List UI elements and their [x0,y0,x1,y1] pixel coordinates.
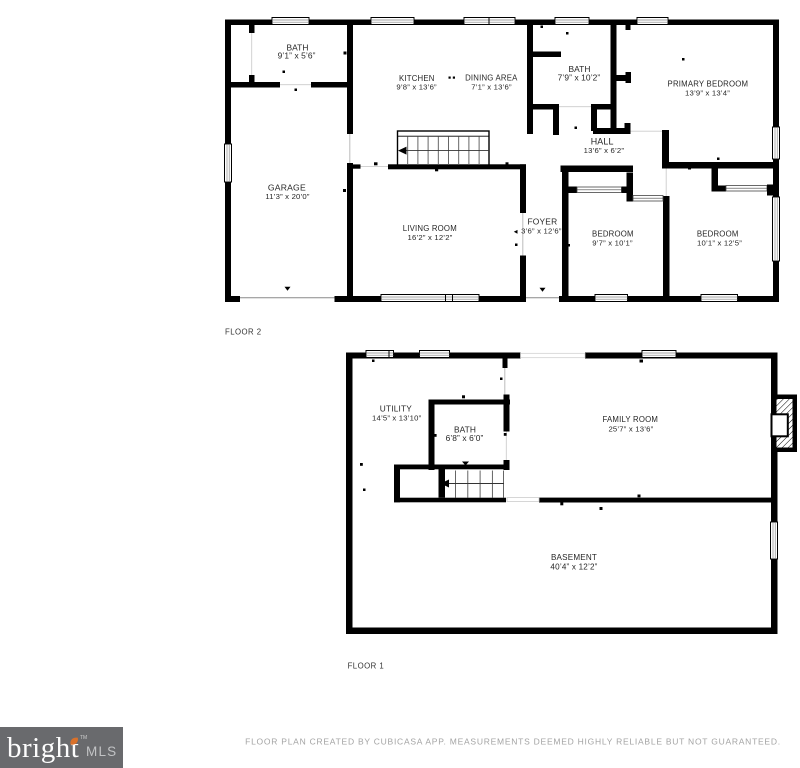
svg-text:LIVING ROOM: LIVING ROOM [403,224,457,233]
svg-text:3’6” x 12’6”: 3’6” x 12’6” [521,227,562,236]
svg-text:KITCHEN: KITCHEN [399,74,435,83]
svg-text:HALL: HALL [591,137,614,147]
svg-text:bright: bright [7,732,79,764]
svg-text:BEDROOM: BEDROOM [592,230,634,239]
svg-text:9’1” x 5’6”: 9’1” x 5’6” [278,51,316,61]
svg-text:UTILITY: UTILITY [380,403,413,413]
svg-text:9’8” x 13’6”: 9’8” x 13’6” [396,83,437,92]
svg-text:DINING AREA: DINING AREA [465,74,518,83]
svg-text:11’3” x 20’0”: 11’3” x 20’0” [265,192,310,201]
svg-text:16’2” x 12’2”: 16’2” x 12’2” [408,233,453,242]
svg-text:14’5” x 13’10”: 14’5” x 13’10” [372,413,422,422]
svg-text:25’7” x 13’6”: 25’7” x 13’6” [608,424,653,433]
svg-text:10’1” x 12’5”: 10’1” x 12’5” [697,239,742,248]
svg-text:TM: TM [80,735,87,741]
svg-text:FLOOR 2: FLOOR 2 [225,328,262,337]
svg-text:9’7” x 10’1”: 9’7” x 10’1” [592,239,633,248]
svg-text:BEDROOM: BEDROOM [697,230,739,239]
svg-text:FLOOR 1: FLOOR 1 [348,662,385,671]
svg-text:13’6” x 6’2”: 13’6” x 6’2” [584,146,625,155]
svg-text:6’8” x 6’0”: 6’8” x 6’0” [446,433,484,443]
svg-text:FLOOR PLAN CREATED BY CUBICASA: FLOOR PLAN CREATED BY CUBICASA APP. MEAS… [245,737,781,747]
svg-text:BASEMENT: BASEMENT [551,553,597,562]
svg-text:40’4” x 12’2”: 40’4” x 12’2” [550,562,597,571]
svg-text:PRIMARY BEDROOM: PRIMARY BEDROOM [668,79,749,88]
svg-text:FOYER: FOYER [527,217,557,227]
svg-text:7’1” x 13’6”: 7’1” x 13’6” [471,82,512,91]
svg-text:7’9” x 10’2”: 7’9” x 10’2” [558,72,601,82]
svg-text:FAMILY ROOM: FAMILY ROOM [602,415,658,424]
svg-text:GARAGE: GARAGE [268,183,306,193]
svg-text:13’9” x 13’4”: 13’9” x 13’4” [685,89,730,98]
svg-text:MLS: MLS [86,744,117,759]
